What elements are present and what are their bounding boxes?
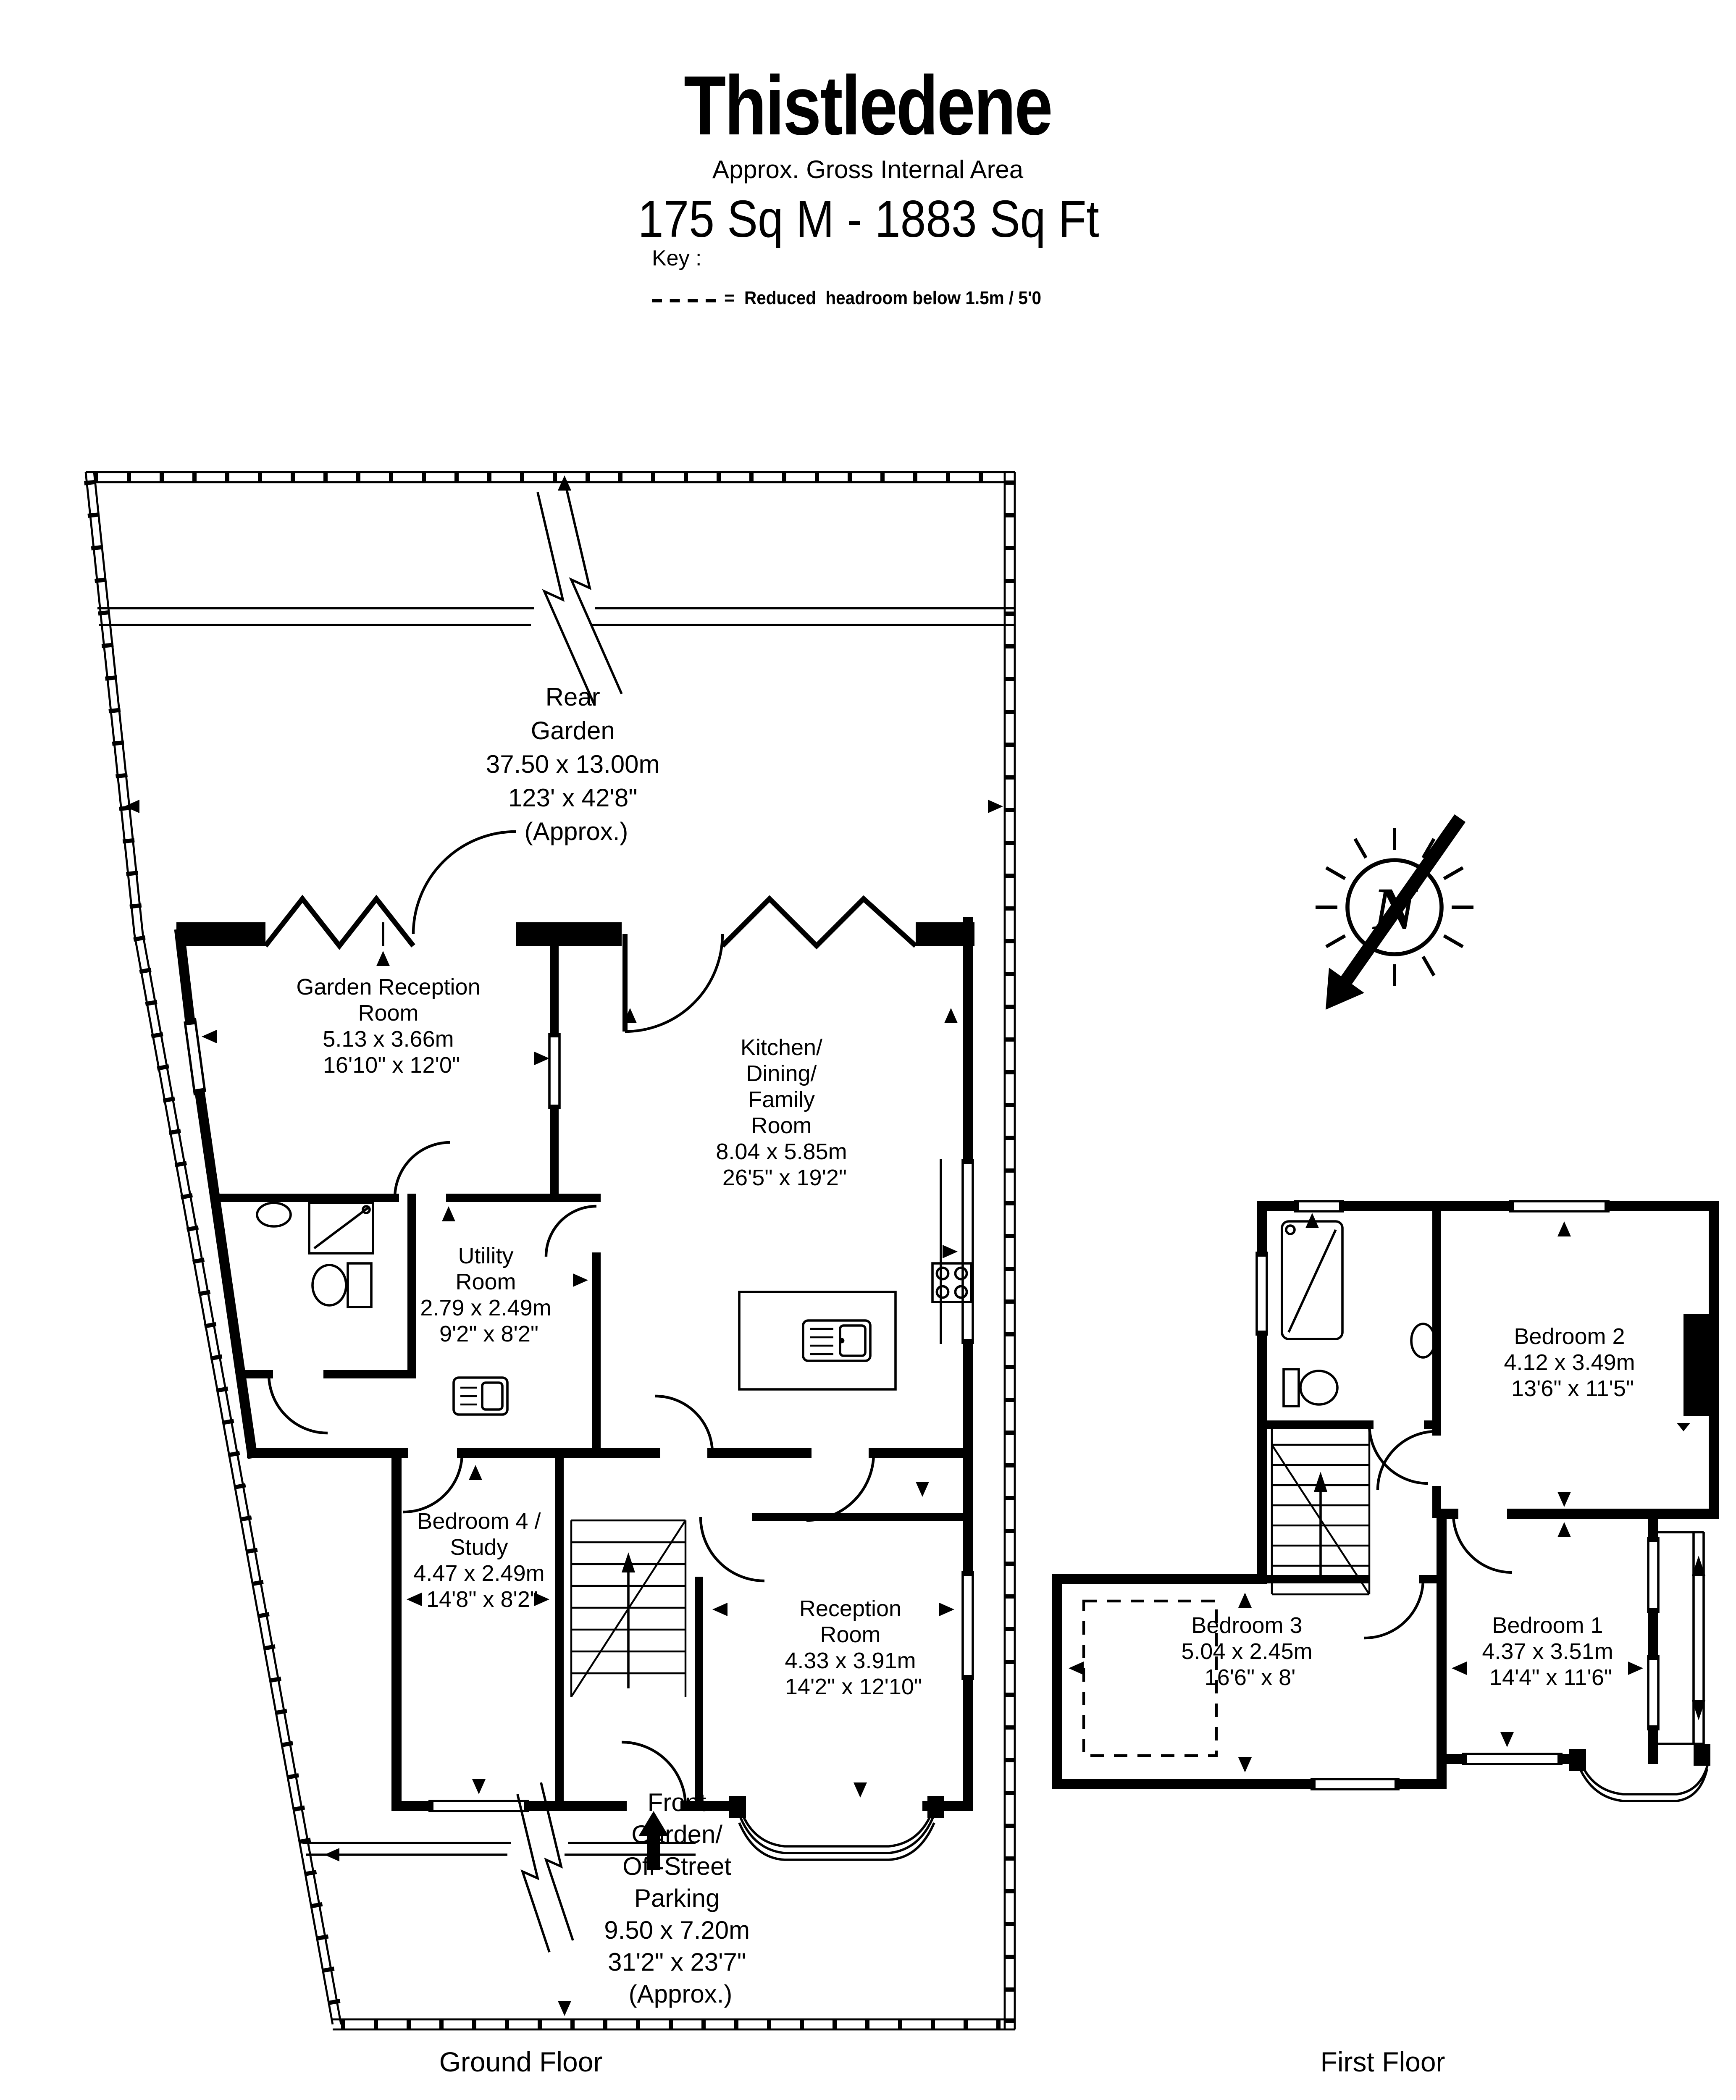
kitchen-island	[739, 1292, 896, 1389]
reduced-headroom-dash-sample	[652, 298, 716, 302]
north-compass: N	[1316, 818, 1473, 1010]
hob-icon	[932, 1263, 971, 1302]
kitchen-dining-family-room-label: Kitchen/ Dining/ Family Room 8.04 x 5.85…	[716, 1035, 853, 1190]
bathroom-fixtures	[1282, 1221, 1435, 1406]
staircase-ground	[571, 1520, 685, 1697]
ground-floor-doors	[269, 1142, 874, 1806]
bedroom-3-label: Bedroom 3 5.04 x 2.45m 16'6" x 8'	[1181, 1613, 1318, 1690]
key-text: Reduced headroom below 1.5m / 5'0	[745, 289, 1042, 309]
reception-room-label: Reception Room 4.33 x 3.91m 14'2" x 12'1…	[785, 1596, 922, 1699]
first-floor-walls	[1057, 1201, 1714, 1801]
utility-sink-icon	[454, 1378, 507, 1415]
key-label: Key :	[652, 245, 702, 270]
bedroom-4-study-label: Bedroom 4 / Study 4.47 x 2.49m 14'8" x 8…	[413, 1509, 551, 1612]
rear-garden-label: Rear Garden 37.50 x 13.00m 123' x 42'8" …	[486, 683, 667, 845]
utility-room-label: Utility Room 2.79 x 2.49m 9'2" x 8'2"	[420, 1243, 557, 1347]
first-floor-label: First Floor	[1321, 2046, 1445, 2077]
floorplan-page: N Rear Garden 37.50 x 13.00m 123' x 42'8…	[0, 0, 1736, 2100]
staircase-first	[1272, 1425, 1369, 1594]
bedroom-2-label: Bedroom 2 4.12 x 3.49m 13'6" x 11'5"	[1504, 1324, 1641, 1401]
page-subtitle: Approx. Gross Internal Area	[0, 156, 1736, 185]
rear-garden-break	[97, 480, 1015, 706]
bedroom-1-label: Bedroom 1 4.37 x 3.51m 14'4" x 11'6"	[1482, 1613, 1619, 1690]
floorplan-drawing: N Rear Garden 37.50 x 13.00m 123' x 42'8…	[0, 0, 1736, 2100]
key-legend: = Reduced headroom below 1.5m / 5'0	[652, 289, 1068, 309]
wc-fixtures	[257, 1203, 373, 1307]
ground-floor-label: Ground Floor	[439, 2046, 603, 2077]
page-title: Thistledene	[0, 64, 1736, 148]
front-garden-label: Front Garden/ Off-Street Parking 9.50 x …	[604, 1788, 757, 2008]
key-equals: =	[724, 289, 735, 309]
gross-internal-area: 175 Sq M - 1883 Sq Ft	[0, 190, 1736, 250]
garden-reception-room-label: Garden Reception Room 5.13 x 3.66m 16'10…	[296, 974, 486, 1078]
